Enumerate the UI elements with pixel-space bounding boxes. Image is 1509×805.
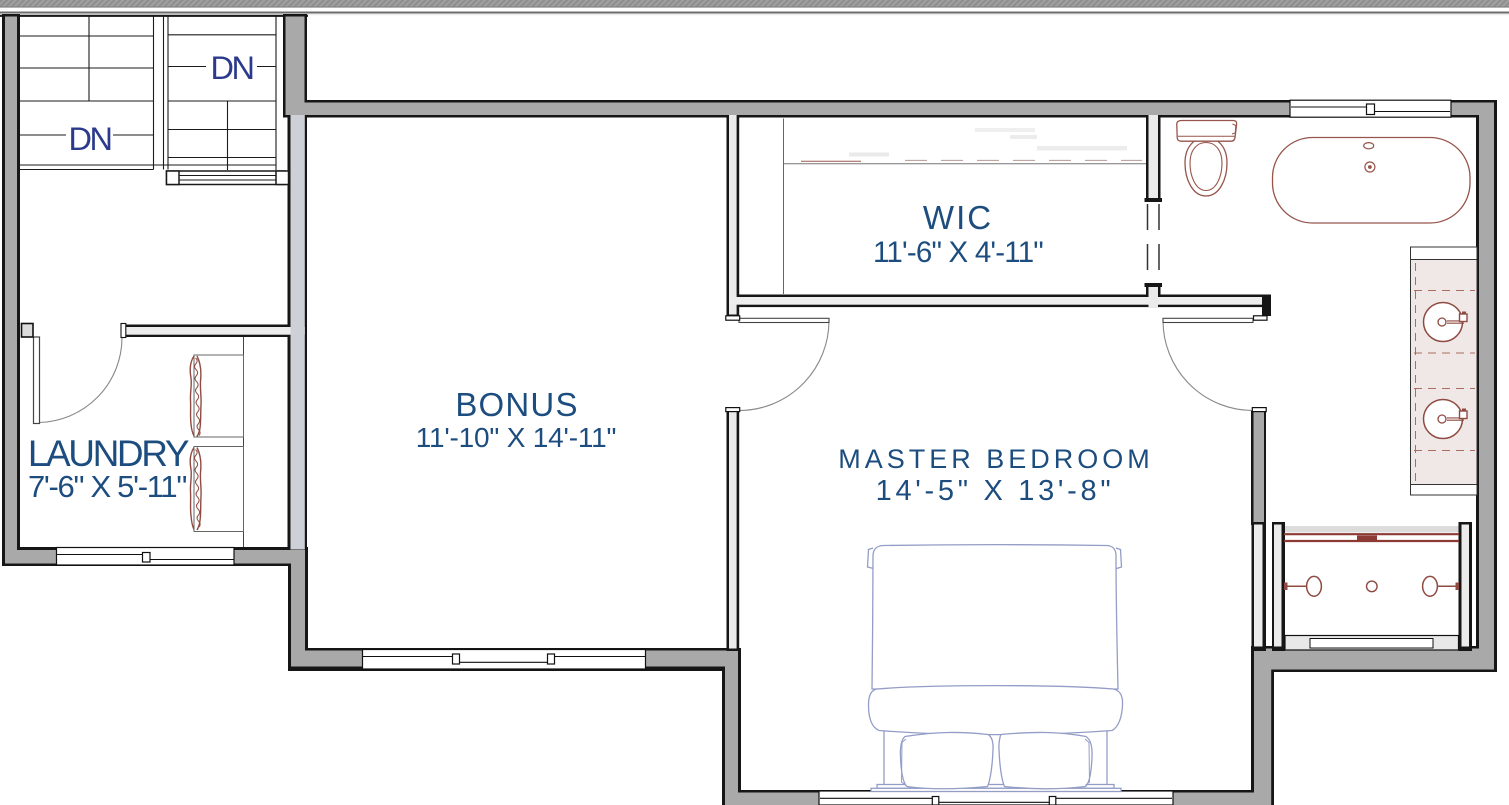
svg-text:BONUS: BONUS bbox=[455, 386, 578, 423]
svg-text:DN: DN bbox=[69, 121, 111, 157]
svg-text:7'-6" X 5'-11": 7'-6" X 5'-11" bbox=[28, 469, 186, 504]
svg-text:11'-10" X 14'-11": 11'-10" X 14'-11" bbox=[416, 422, 616, 453]
svg-text:WIC: WIC bbox=[923, 199, 993, 236]
svg-text:LAUNDRY: LAUNDRY bbox=[28, 433, 189, 474]
svg-text:11'-6" X 4'-11": 11'-6" X 4'-11" bbox=[873, 236, 1043, 269]
svg-text:14'-5" X 13'-8": 14'-5" X 13'-8" bbox=[876, 475, 1115, 507]
svg-text:DN: DN bbox=[211, 50, 253, 86]
svg-text:MASTER BEDROOM: MASTER BEDROOM bbox=[838, 444, 1154, 474]
